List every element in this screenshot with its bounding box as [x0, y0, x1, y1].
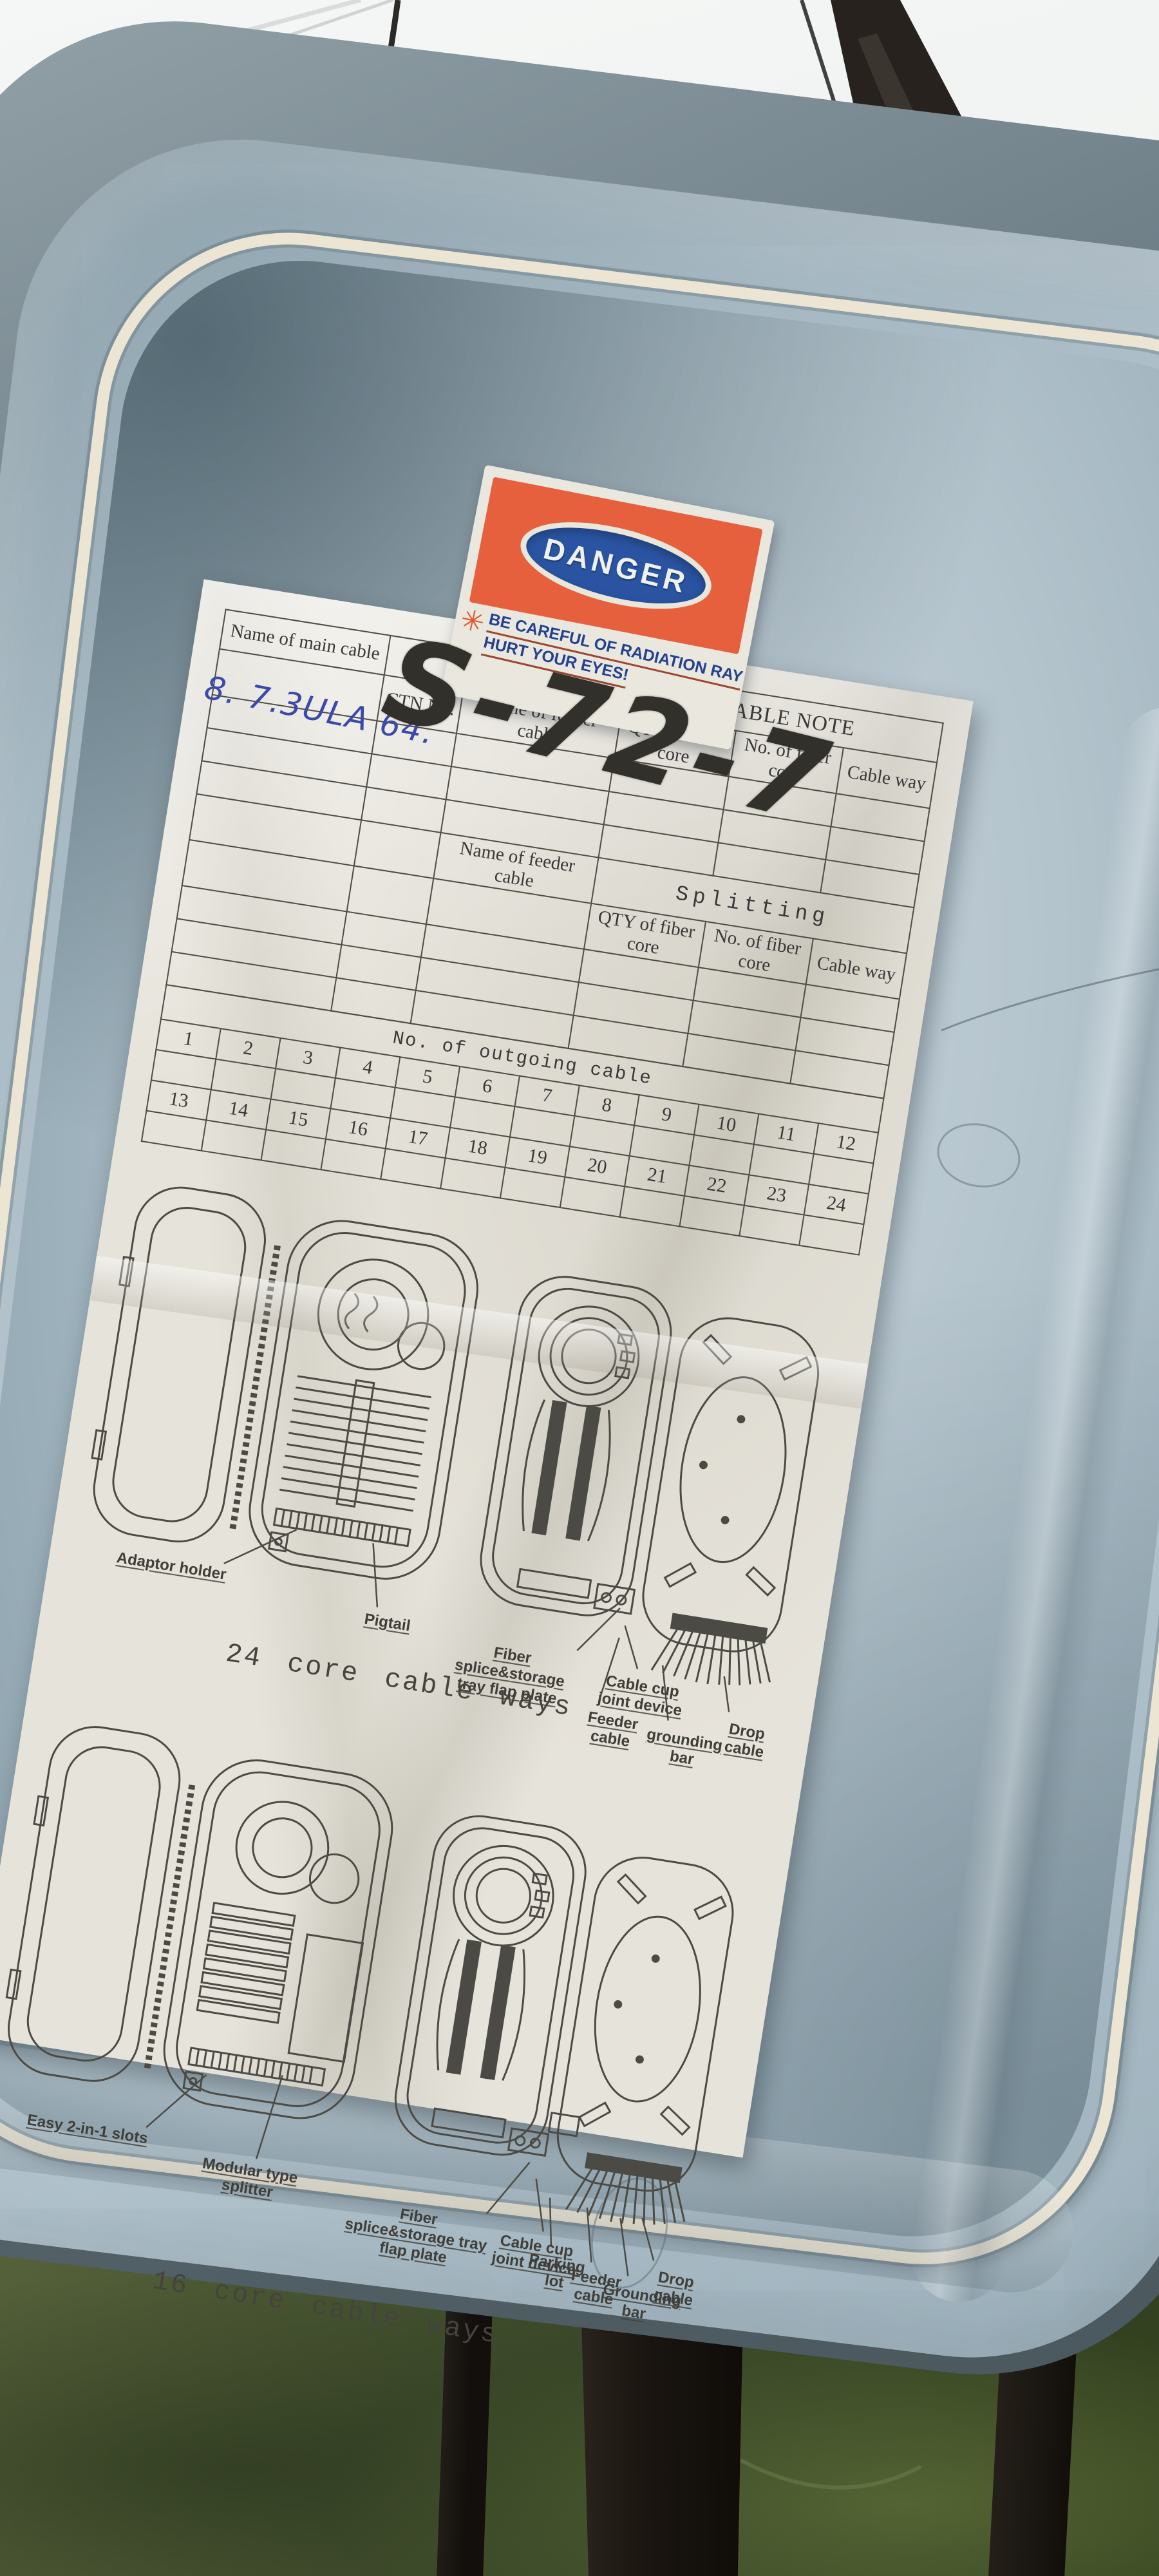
danger-title: DANGER: [540, 531, 692, 600]
diagram-24-core: Adaptor holder Pigtail Fiber splice&stor…: [57, 1162, 843, 1783]
danger-oval: DANGER: [512, 506, 720, 625]
photo-scene: 8. 7.3ULA 64. Name of main cable OPTICAL…: [0, 0, 1159, 2576]
diagram-16-core: Easy 2-in-1 slots Modular type splitter …: [0, 1701, 758, 2329]
